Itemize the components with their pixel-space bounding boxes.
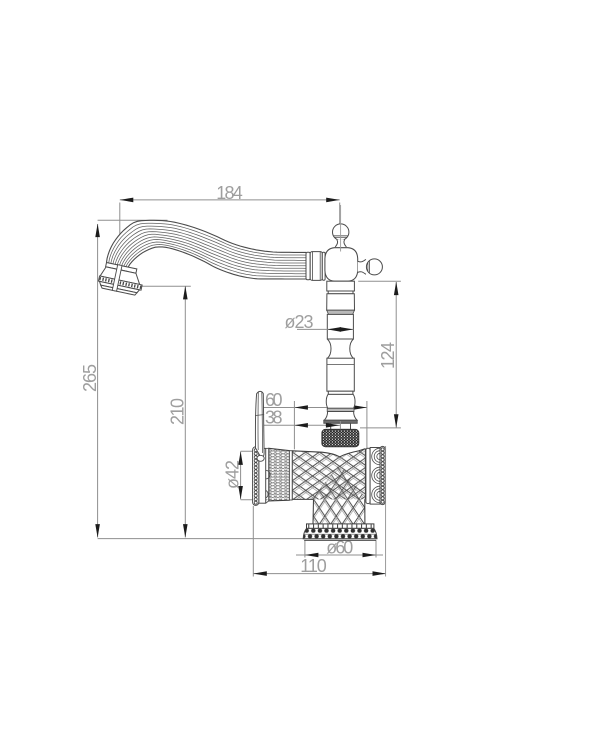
svg-text:184: 184 — [216, 183, 243, 203]
svg-text:ø42: ø42 — [222, 460, 242, 489]
svg-text:38: 38 — [265, 408, 283, 428]
svg-text:124: 124 — [378, 342, 398, 369]
svg-text:ø23: ø23 — [285, 312, 314, 332]
svg-text:265: 265 — [80, 364, 100, 392]
svg-text:110: 110 — [300, 556, 327, 576]
svg-text:210: 210 — [168, 398, 188, 425]
